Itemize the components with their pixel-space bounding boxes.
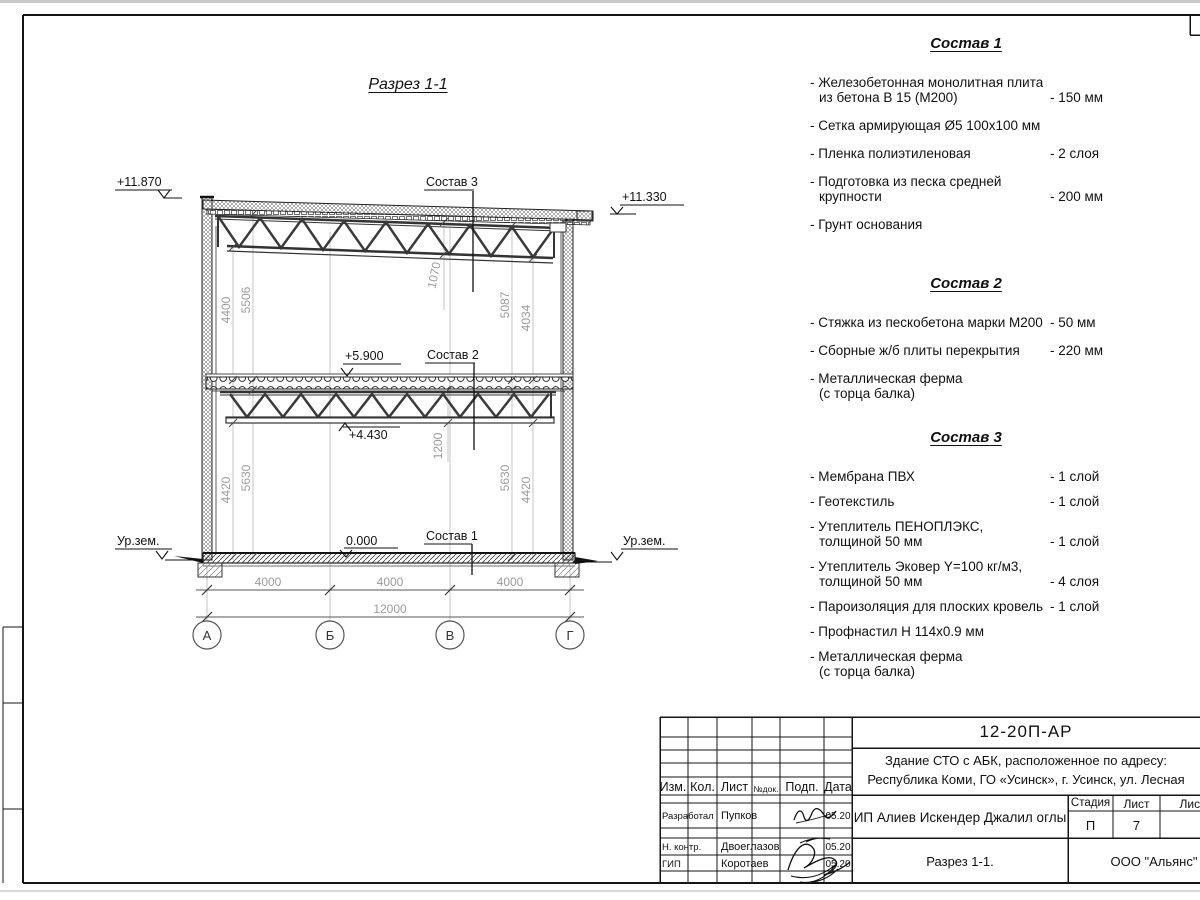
- elev-left-top: +11.870: [117, 175, 162, 189]
- composition-list-2: Состав 2 - Стяжка из пескобетона марки М…: [810, 276, 1122, 414]
- stage-value: П: [1068, 818, 1113, 833]
- dim-4034: 4034: [519, 304, 533, 331]
- label-sostav-2: Состав 2: [427, 348, 479, 362]
- axis-bubbles: А Б В Г: [193, 621, 584, 649]
- name-dvoeglazov: Двоеглазов: [721, 841, 783, 853]
- hollow-core-slab: [206, 377, 573, 389]
- dim-5506: 5506: [239, 286, 253, 313]
- dim-4420-right: 4420: [519, 476, 533, 503]
- list-item: - Грунт основания: [810, 217, 1122, 232]
- list-item: - Геотекстиль - 1 слой: [810, 494, 1122, 509]
- dim-1200: 1200: [431, 432, 445, 459]
- list-item: - Утеплитель ПЕНОПЛЭКС,толщиной 50 мм - …: [810, 519, 1122, 549]
- list-item: - Металлическая ферма(с торца балка): [810, 371, 1122, 401]
- role-gip: ГИП: [662, 859, 717, 870]
- dim-total: 12000: [373, 602, 407, 616]
- ground-assembly: [165, 553, 612, 577]
- composition-1-heading: Состав 1: [810, 36, 1122, 51]
- date-razrabotal: 05.20: [824, 811, 852, 822]
- col-data: Дата: [824, 780, 852, 794]
- dim-span-3: 4000: [497, 575, 524, 589]
- ground-wedge-right: [575, 557, 598, 564]
- axis-g: Г: [566, 628, 573, 643]
- col-izm: Изм.: [658, 780, 688, 794]
- elev-zero: 0.000: [346, 534, 377, 548]
- right-footing: [555, 563, 579, 577]
- client-name: ИП Алиев Искендер Джалил оглы: [852, 810, 1068, 825]
- composition-3-heading: Состав 3: [810, 430, 1122, 445]
- list-item: - Сетка армирующая Ø5 100х100 мм: [810, 118, 1122, 133]
- col-kol: Кол.: [688, 780, 717, 794]
- col-list: Лист: [717, 780, 752, 794]
- floor-truss-web: [230, 394, 549, 417]
- dim-5630-left: 5630: [239, 464, 253, 491]
- col-ndok: №док.: [752, 784, 780, 794]
- list-item: - Мембрана ПВХ - 1 слой: [810, 469, 1122, 484]
- dim-span-1: 4000: [255, 575, 282, 589]
- stage-label: Стадия: [1068, 797, 1113, 809]
- sheet-label: Лист: [1113, 797, 1160, 811]
- roof-assembly: [203, 200, 593, 263]
- name-korotaev: Коротаев: [721, 858, 783, 870]
- elev-right-top: +11.330: [622, 190, 667, 204]
- view-name: Разрез 1-1.: [852, 854, 1068, 869]
- ground-level-left: Ур.зем.: [117, 534, 159, 548]
- elev-truss: +4.430: [349, 428, 388, 442]
- dim-4420-left: 4420: [219, 476, 233, 503]
- axis-a: А: [203, 628, 212, 643]
- left-footing: [198, 563, 222, 577]
- dim-span-2: 4000: [377, 575, 404, 589]
- ground-level-right: Ур.зем.: [623, 534, 665, 548]
- date-nkontr: 05.20: [824, 842, 852, 853]
- dim-1070: 1070: [424, 260, 443, 289]
- sheet-number: 7: [1113, 818, 1160, 833]
- date-gip: 05.20: [824, 859, 852, 870]
- list-item: - Металлическая ферма(с торца балка): [810, 649, 1122, 679]
- right-wall: [563, 221, 573, 560]
- role-nkontr: Н. контр.: [662, 842, 717, 853]
- bottom-dimensions: 4000 4000 4000 12000: [196, 575, 584, 622]
- section-title: Разрез 1-1: [348, 76, 468, 94]
- list-item: - Утеплитель Эковер Y=100 кг/м3,толщиной…: [810, 559, 1122, 589]
- roof-truss-bottom-chord: [227, 246, 553, 258]
- dim-4400: 4400: [219, 296, 233, 323]
- composition-list-1: Состав 1 - Железобетонная монолитная пли…: [810, 36, 1122, 245]
- axis-v: В: [446, 628, 455, 643]
- dim-5630-right: 5630: [498, 464, 512, 491]
- company-name: ООО "Альянс": [1068, 854, 1200, 869]
- name-pupkov: Пупков: [721, 810, 779, 822]
- composition-list-3: Состав 3 - Мембрана ПВХ - 1 слой - Геоте…: [810, 430, 1122, 689]
- list-item: - Железобетонная монолитная плитаиз бето…: [810, 75, 1122, 105]
- elev-floor: +5.900: [345, 349, 384, 363]
- list-item: - Подготовка из песка среднейкрупности -…: [810, 174, 1122, 204]
- dim-5087: 5087: [498, 291, 512, 318]
- axis-b: Б: [326, 628, 335, 643]
- ground-slab: [203, 553, 575, 563]
- list-item: - Пленка полиэтиленовая - 2 слоя: [810, 146, 1122, 161]
- section-drawing: [165, 191, 612, 577]
- drawing-sheet: { "section": { "title": "Разрез 1-1", "e…: [0, 0, 1200, 900]
- composition-2-heading: Состав 2: [810, 276, 1122, 291]
- col-podp: Подп.: [780, 780, 824, 794]
- sheets-label: Листов: [1160, 797, 1200, 811]
- list-item: - Стяжка из пескобетона марки М200 - 50 …: [810, 315, 1122, 330]
- label-sostav-1: Состав 1: [426, 529, 478, 543]
- project-name-line2: Республика Коми, ГО «Усинск», г. Усинск,…: [852, 772, 1200, 787]
- roof-end-fascia: [577, 211, 593, 221]
- list-item: - Пароизоляция для плоских кровель - 1 с…: [810, 599, 1122, 614]
- label-sostav-3: Состав 3: [426, 175, 478, 189]
- floor-assembly: [206, 374, 573, 423]
- doc-number: 12-20П-АР: [852, 722, 1200, 742]
- list-item: - Профнастил Н 114х0.9 мм: [810, 624, 1122, 639]
- project-name-line1: Здание СТО с АБК, расположенное по адрес…: [852, 753, 1200, 768]
- list-item: - Сборные ж/б плиты перекрытия - 220 мм: [810, 343, 1122, 358]
- role-razrabotal: Разработал: [662, 811, 717, 822]
